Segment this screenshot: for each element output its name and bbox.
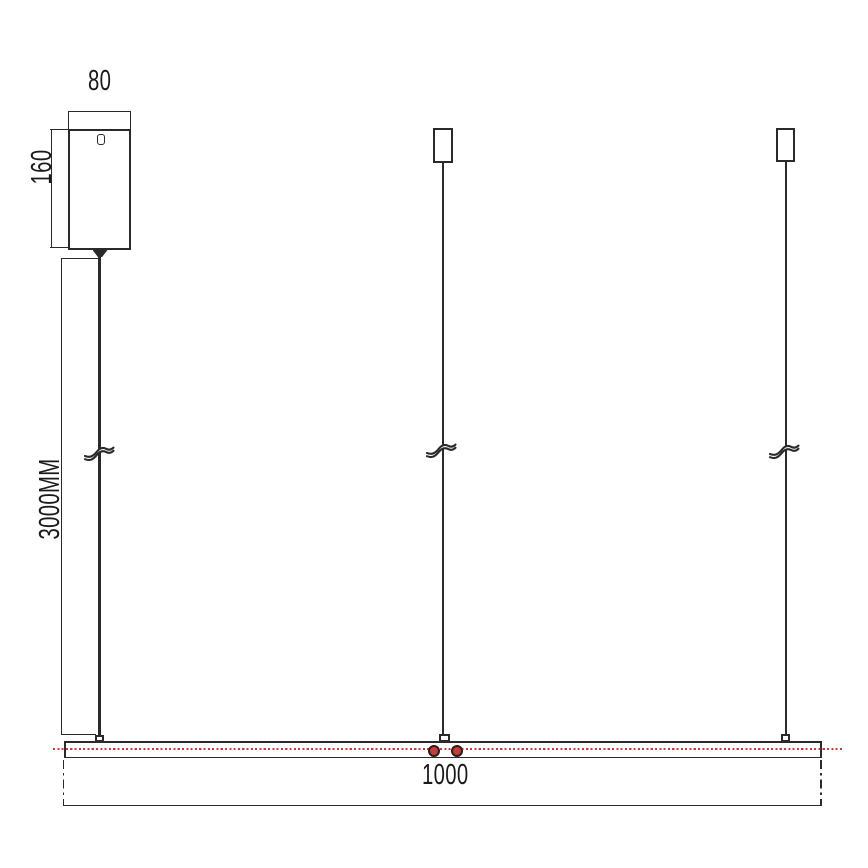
dim-label-fixture-length: 1000 (375, 760, 515, 790)
dim-label-suspension-length-text: 3000MM (35, 458, 65, 539)
canopy-collar (68, 111, 131, 131)
dim-1000-ext-right (820, 760, 822, 805)
dim-label-canopy-width: 80 (30, 66, 170, 96)
dim-3000-ext-top (61, 258, 99, 259)
dim-label-canopy-width-text: 80 (88, 66, 111, 96)
dim-label-canopy-height-text: 160 (27, 150, 57, 185)
ceiling-mount-right (776, 128, 795, 162)
dim-160-ext-top (50, 129, 69, 130)
led-node-icon (428, 745, 440, 757)
cable-break-icon (769, 442, 800, 462)
dim-label-suspension-length: 3000MM (35, 441, 65, 557)
led-strip-line (53, 748, 842, 750)
dim-1000-ext-left (63, 760, 65, 805)
dim-label-fixture-length-text: 1000 (422, 760, 469, 790)
ceiling-mount-middle (433, 128, 453, 163)
suspension-cable-left (98, 250, 101, 737)
dim-3000-ext-bottom (61, 734, 96, 735)
dim-160-ext-bottom (50, 247, 69, 248)
cable-break-icon (426, 441, 457, 461)
led-node-icon (451, 745, 463, 757)
dim-1000-line (63, 805, 822, 807)
canopy-box (68, 129, 131, 250)
keyhole-icon (97, 134, 105, 145)
cable-break-icon (84, 444, 115, 464)
dimension-drawing-canvas: 80 160 3000MM (0, 0, 868, 868)
dim-label-canopy-height: 160 (27, 142, 57, 192)
